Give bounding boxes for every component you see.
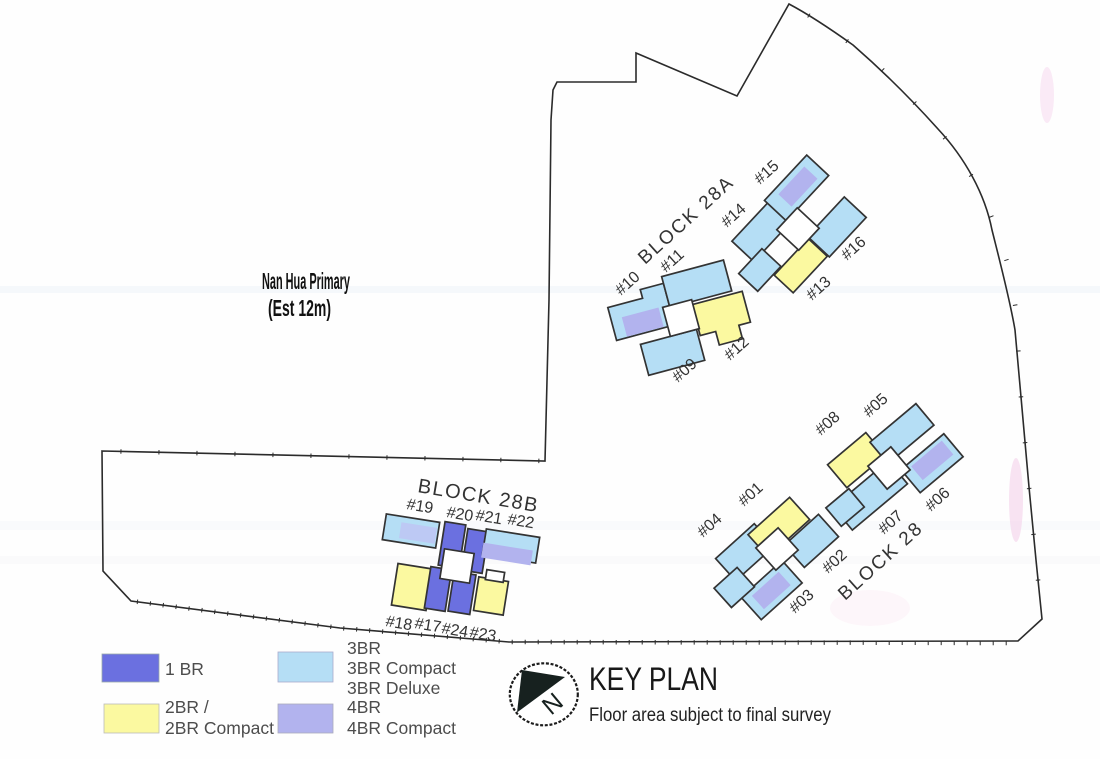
svg-text:4BR Compact: 4BR Compact (347, 718, 456, 738)
svg-text:2BR /: 2BR / (165, 697, 209, 717)
svg-text:2BR Compact: 2BR Compact (165, 718, 274, 738)
svg-text:1 BR: 1 BR (165, 659, 204, 679)
svg-text:3BR Deluxe: 3BR Deluxe (347, 678, 440, 698)
svg-text:3BR: 3BR (347, 638, 381, 658)
svg-text:(Est 12m): (Est 12m) (268, 295, 331, 321)
svg-text:Floor area subject to final su: Floor area subject to final survey (589, 705, 831, 726)
svg-text:3BR Compact: 3BR Compact (347, 658, 456, 678)
svg-text:Nan Hua Primary: Nan Hua Primary (262, 268, 350, 294)
svg-text:4BR: 4BR (347, 697, 381, 717)
svg-text:KEY PLAN: KEY PLAN (589, 661, 718, 697)
